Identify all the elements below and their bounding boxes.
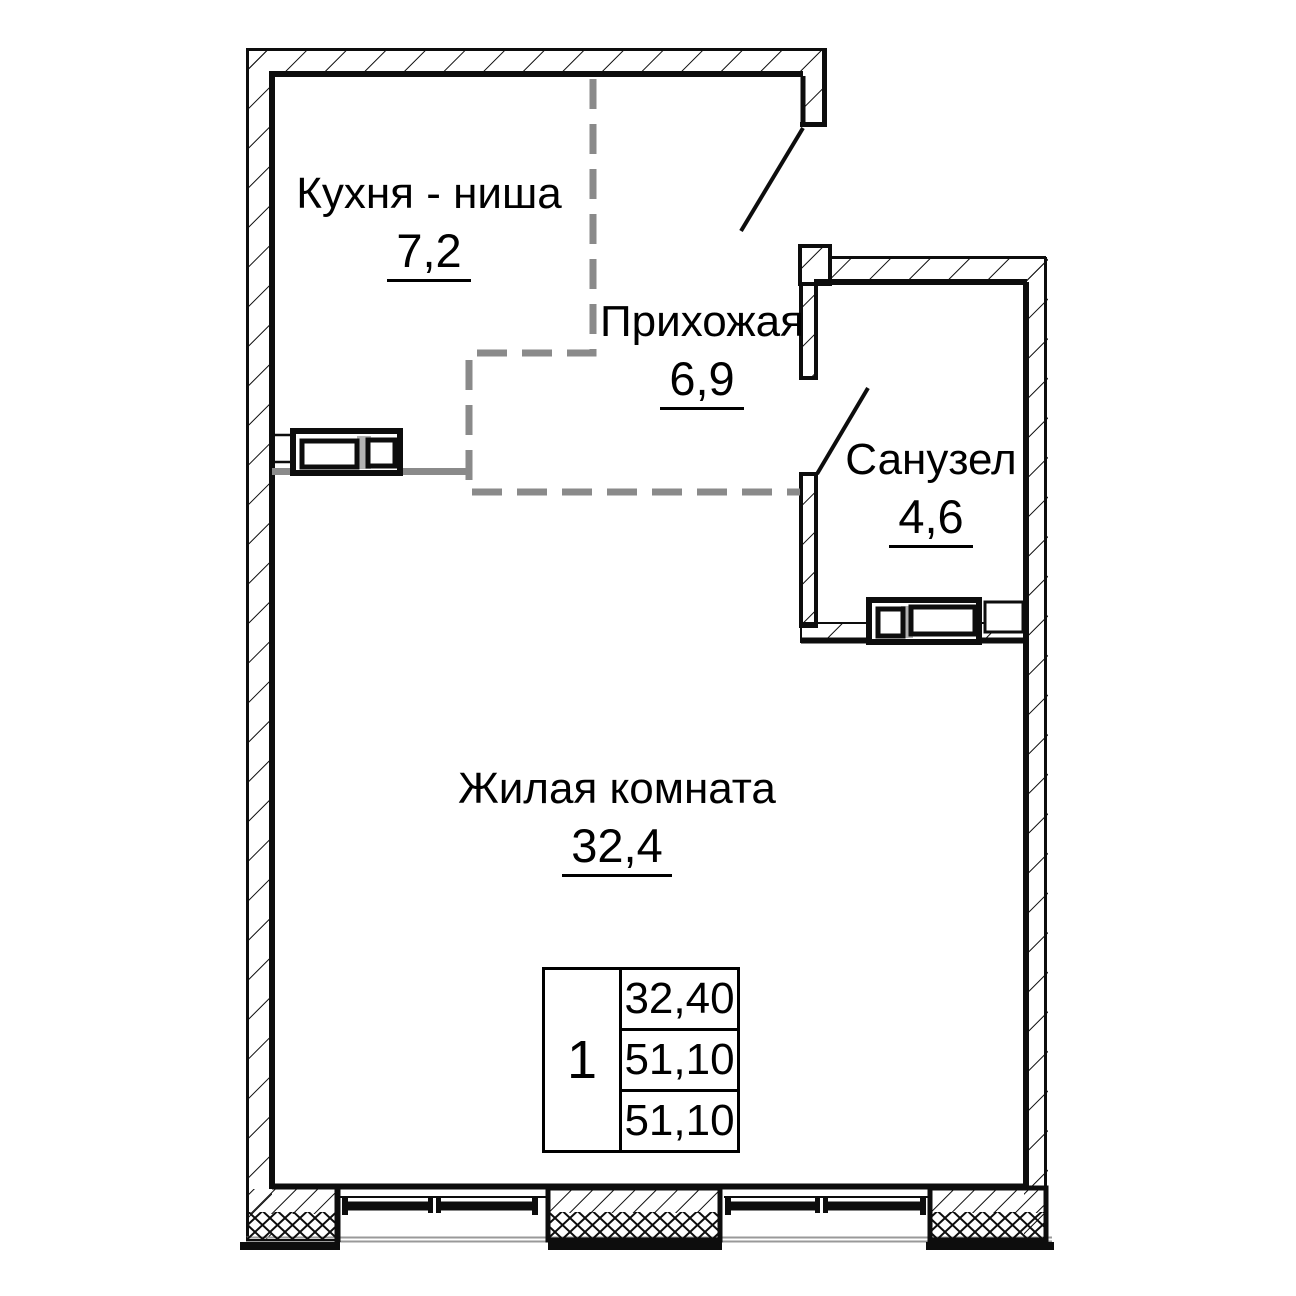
pier-left	[246, 1186, 338, 1242]
room-label-kitchen: Кухня - ниша 7,2	[269, 168, 589, 282]
room-area-value: 32,4	[562, 820, 671, 878]
sill-bar-right	[926, 1242, 1054, 1250]
apartment-stamp-table: 1 32,40 51,10 51,10	[542, 967, 740, 1153]
floorplan-canvas: Кухня - ниша 7,2 Прихожая 6,9 Санузел 4,…	[0, 0, 1296, 1296]
stamp-area-row: 51,10	[622, 1031, 737, 1092]
room-name: Санузел	[771, 434, 1091, 487]
room-name: Кухня - ниша	[269, 168, 589, 221]
kitchen-sink	[302, 441, 357, 467]
stamp-areas-column: 32,40 51,10 51,10	[622, 970, 737, 1150]
room-label-hallway: Прихожая 6,9	[542, 296, 862, 410]
stamp-area-row: 51,10	[622, 1092, 737, 1150]
bathroom-washer	[911, 607, 975, 634]
pier-middle	[548, 1188, 720, 1240]
sill-bar-left	[240, 1242, 340, 1250]
entrance-door-swing	[741, 128, 803, 231]
sill-bar-middle	[548, 1242, 722, 1250]
kitchen-hob	[368, 440, 395, 466]
stamp-area-row: 32,40	[622, 970, 737, 1031]
stamp-rooms-count: 1	[545, 970, 622, 1150]
pier-right	[930, 1188, 1046, 1240]
kitchen-unit	[272, 431, 400, 473]
bathroom-sink	[878, 609, 903, 636]
bathroom-shelf	[985, 602, 1023, 632]
room-area-value: 6,9	[660, 353, 743, 411]
bottom-wall	[240, 1186, 1054, 1250]
window-right	[724, 1197, 928, 1215]
room-area: 6,9	[542, 353, 862, 411]
room-area-value: 4,6	[889, 491, 972, 549]
room-area: 32,4	[437, 820, 797, 878]
room-area: 4,6	[771, 491, 1091, 549]
entrance-pier	[800, 76, 827, 126]
room-area-value: 7,2	[387, 225, 470, 283]
room-name: Прихожая	[542, 296, 862, 349]
window-left	[340, 1197, 546, 1215]
room-name: Жилая комната	[437, 763, 797, 816]
room-area: 7,2	[269, 225, 589, 283]
room-label-living: Жилая комната 32,4	[437, 763, 797, 877]
top-wall	[246, 48, 827, 127]
zone-dashed-line	[469, 79, 800, 492]
room-label-bathroom: Санузел 4,6	[771, 434, 1091, 548]
